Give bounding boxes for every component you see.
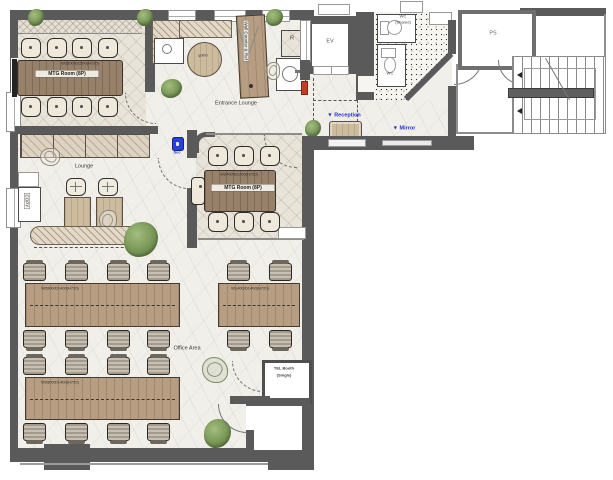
room-elevator [312, 24, 348, 66]
round-table-dim: φ900 [188, 53, 218, 58]
ev-door-panel [331, 66, 349, 75]
mtg-room-1-dim: W3200/D1200(H720) [45, 61, 115, 66]
chair-sketch [40, 148, 60, 166]
chair [21, 38, 41, 58]
chair [66, 178, 86, 196]
chair [107, 423, 130, 441]
chair [147, 263, 170, 281]
wc-shared-label-2: (Shared) [388, 20, 418, 25]
wc-door-gap [358, 76, 374, 92]
restroom-label: R [282, 35, 302, 41]
chair [47, 38, 67, 58]
chair [23, 357, 46, 375]
ev-door-panel [313, 66, 332, 75]
boundary-line [456, 64, 458, 134]
chair [234, 212, 254, 232]
chair [72, 97, 92, 117]
chair [72, 38, 92, 58]
wall-pier [44, 444, 90, 470]
desk-dim-2: W1400/D1400(H720) [213, 286, 288, 291]
elevator-label: EV [315, 38, 345, 44]
lease-boundary-dashed [313, 100, 357, 101]
plant-sketch [202, 357, 228, 383]
desk-dim-1: W2800/D1400(H720) [23, 286, 98, 291]
person-sketch [266, 62, 280, 80]
chair [208, 212, 228, 232]
shaft-vent [400, 1, 423, 13]
chair [21, 97, 41, 117]
chair [260, 146, 280, 166]
round-table [187, 42, 222, 77]
credenza [278, 227, 306, 239]
shaft-vent [318, 4, 350, 15]
office-area-label: Office Area [162, 345, 212, 351]
washbasin-sink [282, 66, 298, 82]
chair [147, 423, 170, 441]
mtg-room-2-dim: W2400/D1200(H720) [204, 172, 274, 177]
desk-dim-3: W2800/D1400(H720) [23, 380, 98, 385]
floor-plan: MTG Room (8P) W3200/D1200(H720) φ900 Wal… [0, 0, 613, 480]
chair [260, 212, 280, 232]
chair [98, 178, 118, 196]
stair-arrow [517, 108, 522, 114]
mirror-niche [382, 140, 432, 146]
sink-icon [162, 44, 172, 54]
chair [107, 263, 130, 281]
wc-shared-label-1: WC [388, 14, 418, 19]
security-sensor-icon [172, 137, 184, 151]
chair [65, 423, 88, 441]
room-vestibule [254, 406, 302, 450]
counter-edge-dashed [34, 247, 134, 248]
chair [234, 146, 254, 166]
chair [98, 97, 118, 117]
entrance-lounge-label: Entrance Lounge [201, 100, 271, 106]
chair [23, 263, 46, 281]
shelf [18, 172, 39, 187]
chair [227, 330, 250, 348]
reception-label: ▼ Reception [314, 112, 374, 118]
vestibule-door-gap [246, 406, 254, 430]
chair [107, 357, 130, 375]
tel-booth-label-2: (Single) [259, 373, 309, 378]
tel-booth-label-1: TEL Booth [259, 366, 309, 371]
mtg-room-2-label: MTG Room (8P) [211, 184, 275, 192]
chair [65, 357, 88, 375]
chair [147, 357, 170, 375]
security-label: Sec [167, 150, 187, 155]
wall [300, 60, 310, 80]
chair [107, 330, 130, 348]
fire-extinguisher-mark [301, 81, 308, 95]
chair [227, 263, 250, 281]
bench-niche [328, 139, 366, 147]
island-counter-label: Wall Counter & Ref [243, 20, 249, 61]
copy-label: COPY [24, 193, 30, 209]
chair [47, 97, 67, 117]
low-counter [30, 226, 134, 245]
mirror-label: ▼ Mirror [379, 125, 429, 131]
chair [208, 146, 228, 166]
wall [448, 20, 456, 54]
chair [269, 330, 292, 348]
chair [23, 330, 46, 348]
chair [191, 177, 205, 205]
mtg-room-1-label: MTG Room (8P) [35, 70, 99, 78]
wall [448, 86, 456, 136]
chair [65, 263, 88, 281]
wc-label: WC [380, 71, 400, 76]
wall [15, 126, 158, 134]
chair [98, 38, 118, 58]
chair [65, 330, 88, 348]
counter-sink-dot [249, 84, 253, 88]
stair-arrow [517, 72, 522, 78]
chair [23, 423, 46, 441]
lounge-label: Lounge [64, 163, 104, 169]
stair-handrail [508, 88, 594, 98]
pipe-shaft-label: PS [478, 30, 508, 36]
chair [269, 263, 292, 281]
